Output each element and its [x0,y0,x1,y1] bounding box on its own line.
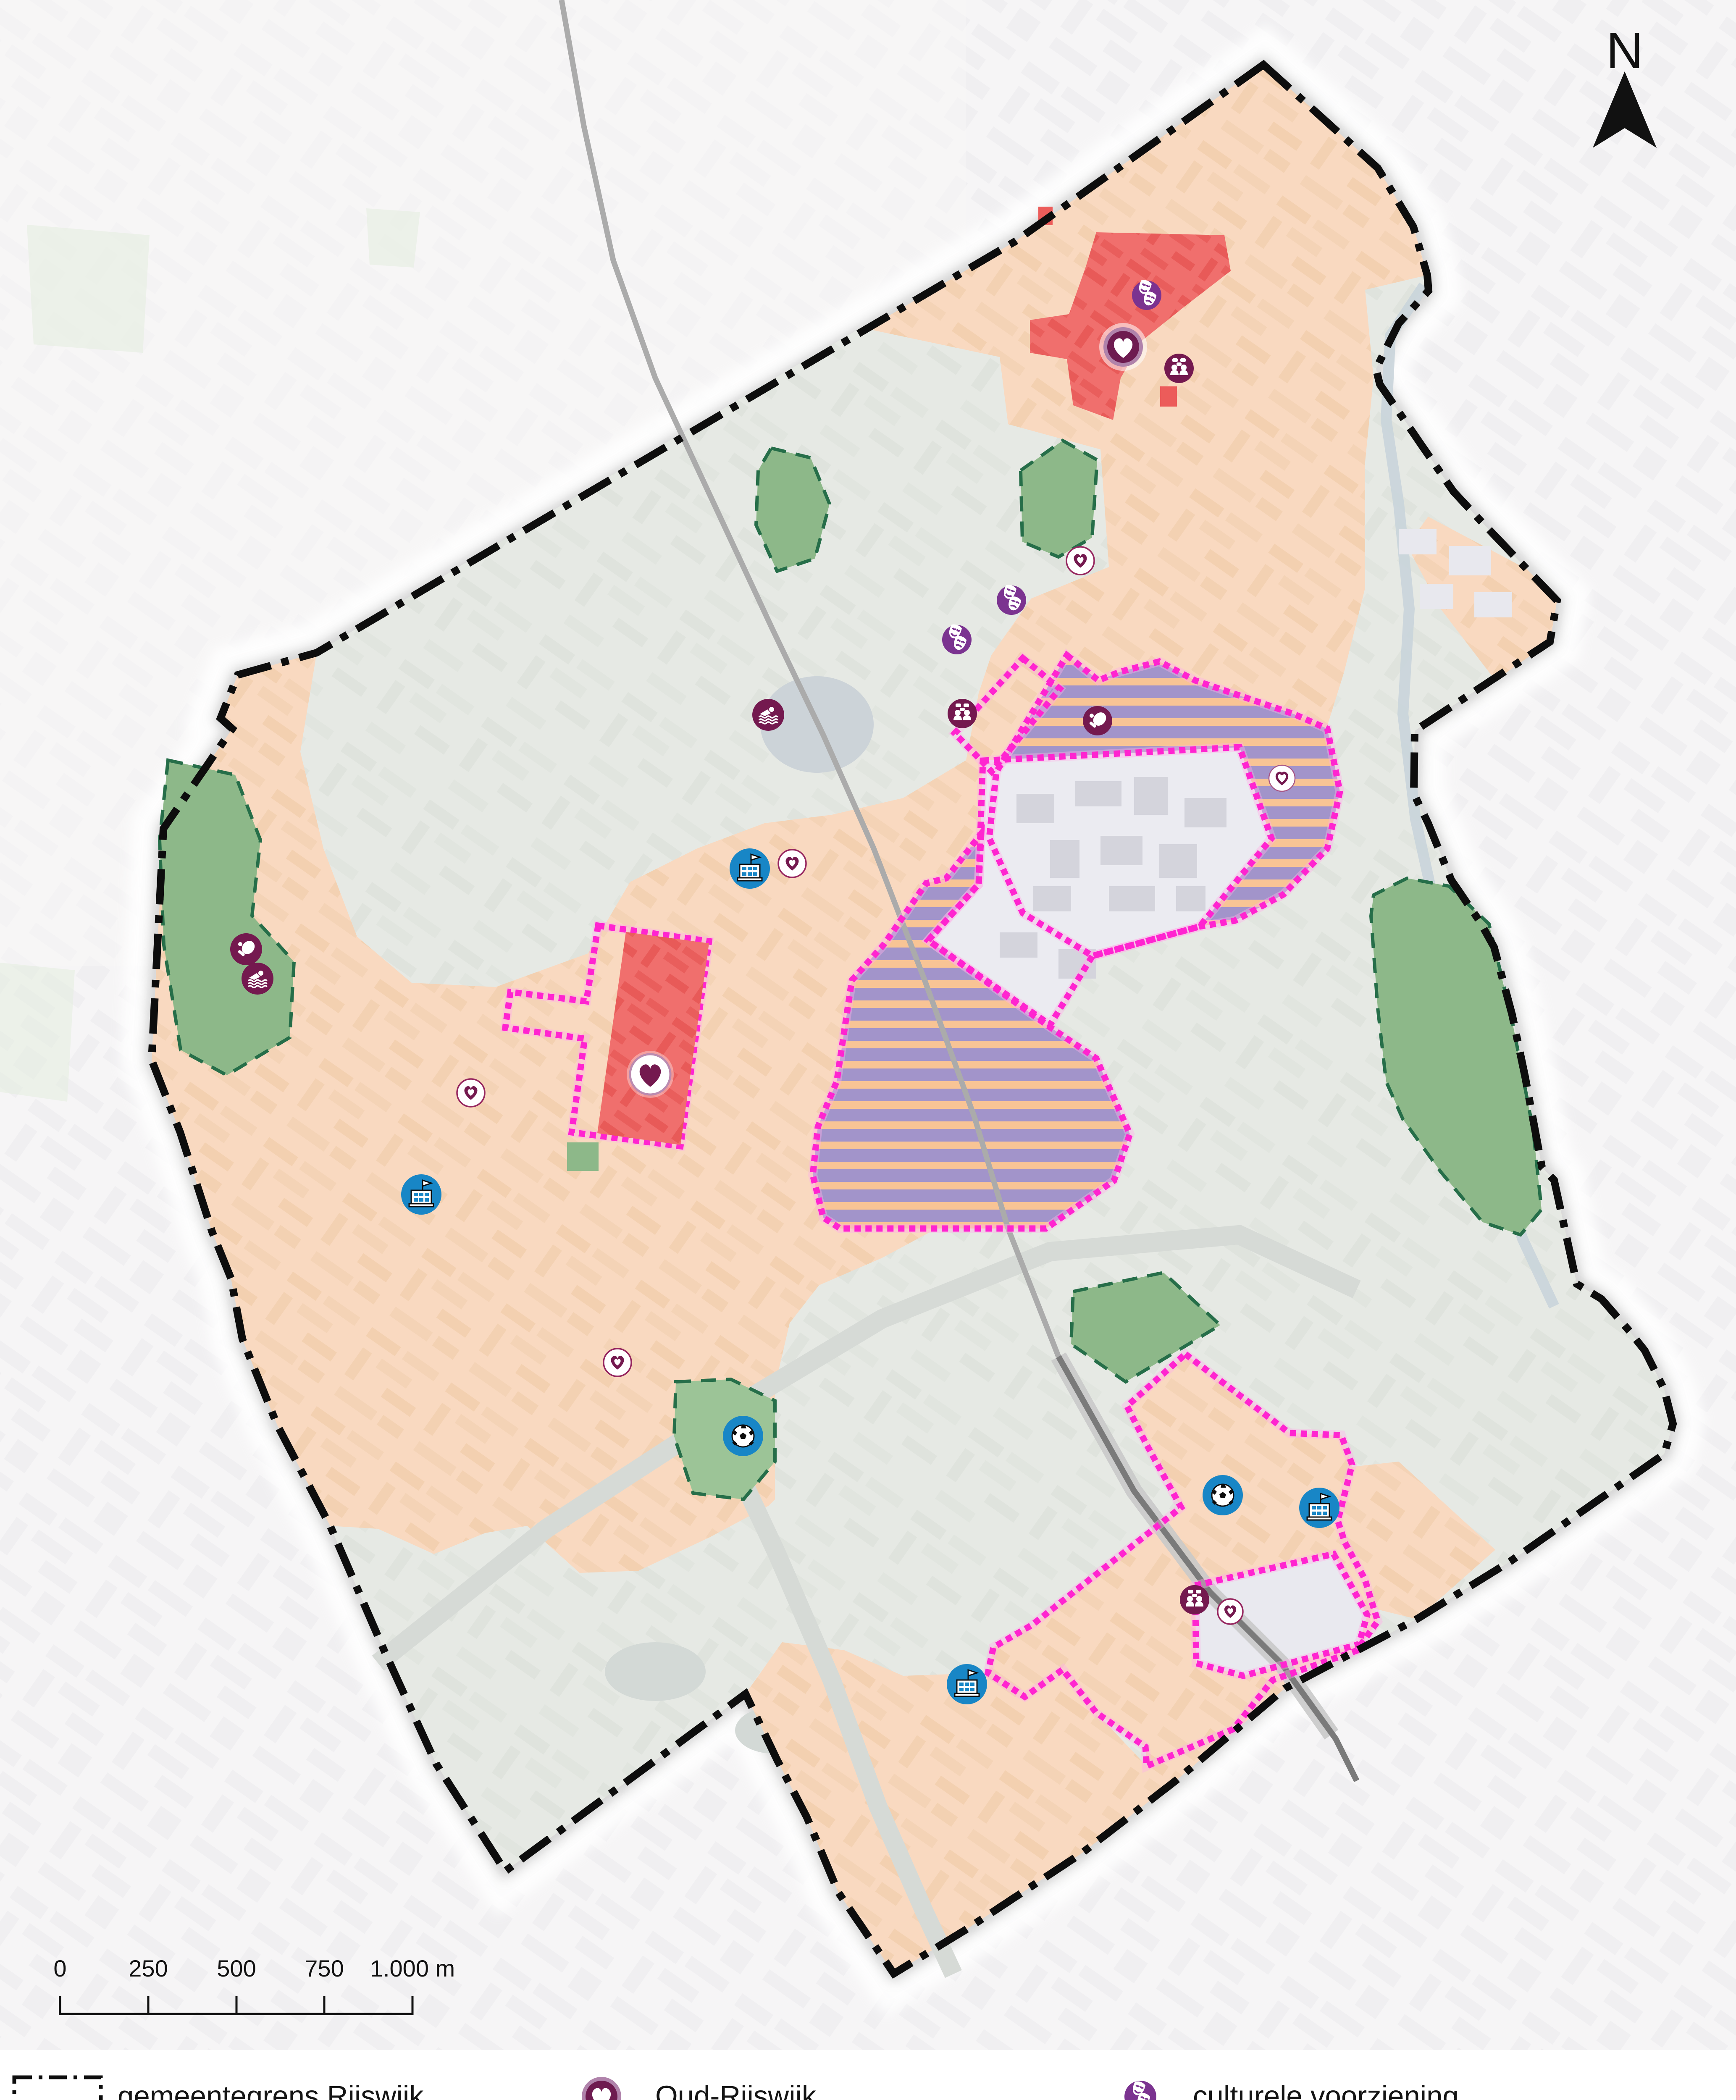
svg-text:1.000 m: 1.000 m [370,1955,455,1982]
svg-text:Oud-Rijswijk: Oud-Rijswijk [655,2080,817,2100]
svg-text:gemeentegrens Rijswijk: gemeentegrens Rijswijk [118,2080,424,2100]
svg-text:250: 250 [129,1955,168,1982]
svg-text:750: 750 [305,1955,344,1982]
svg-text:0: 0 [53,1955,66,1982]
svg-text:N: N [1606,22,1643,79]
svg-text:culturele voorziening: culturele voorziening [1193,2080,1459,2100]
svg-text:500: 500 [217,1955,256,1982]
